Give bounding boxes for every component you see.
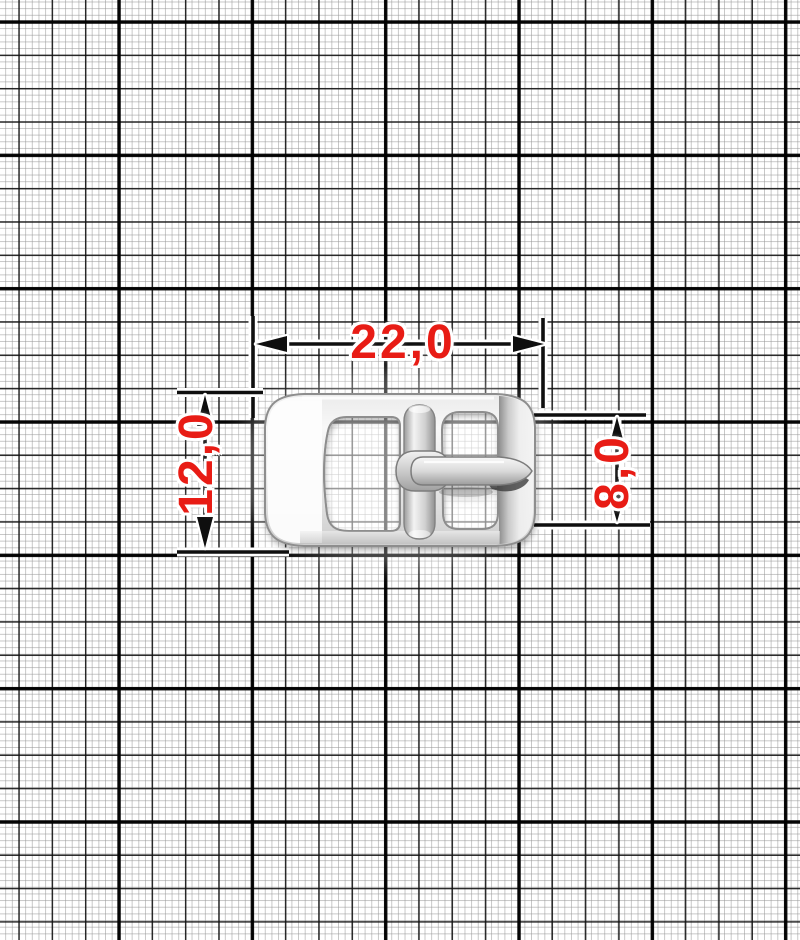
buckle-bottom-band: [300, 531, 500, 544]
right-height-dimension-label: 8,0: [589, 434, 637, 510]
left-height-dimension-label: 12,0: [173, 410, 221, 515]
arrowhead-down-icon: [197, 517, 213, 548]
width-dimension-label: 22,0: [350, 319, 455, 367]
bar-top-highlight: [409, 405, 431, 413]
pin-cast-shadow: [439, 487, 493, 497]
technical-drawing: [0, 0, 800, 940]
bar-bottom-highlight: [409, 530, 431, 538]
buckle-photo: [265, 394, 535, 546]
arrowhead-left-icon: [256, 336, 287, 352]
buckle-left-band: [267, 397, 322, 543]
